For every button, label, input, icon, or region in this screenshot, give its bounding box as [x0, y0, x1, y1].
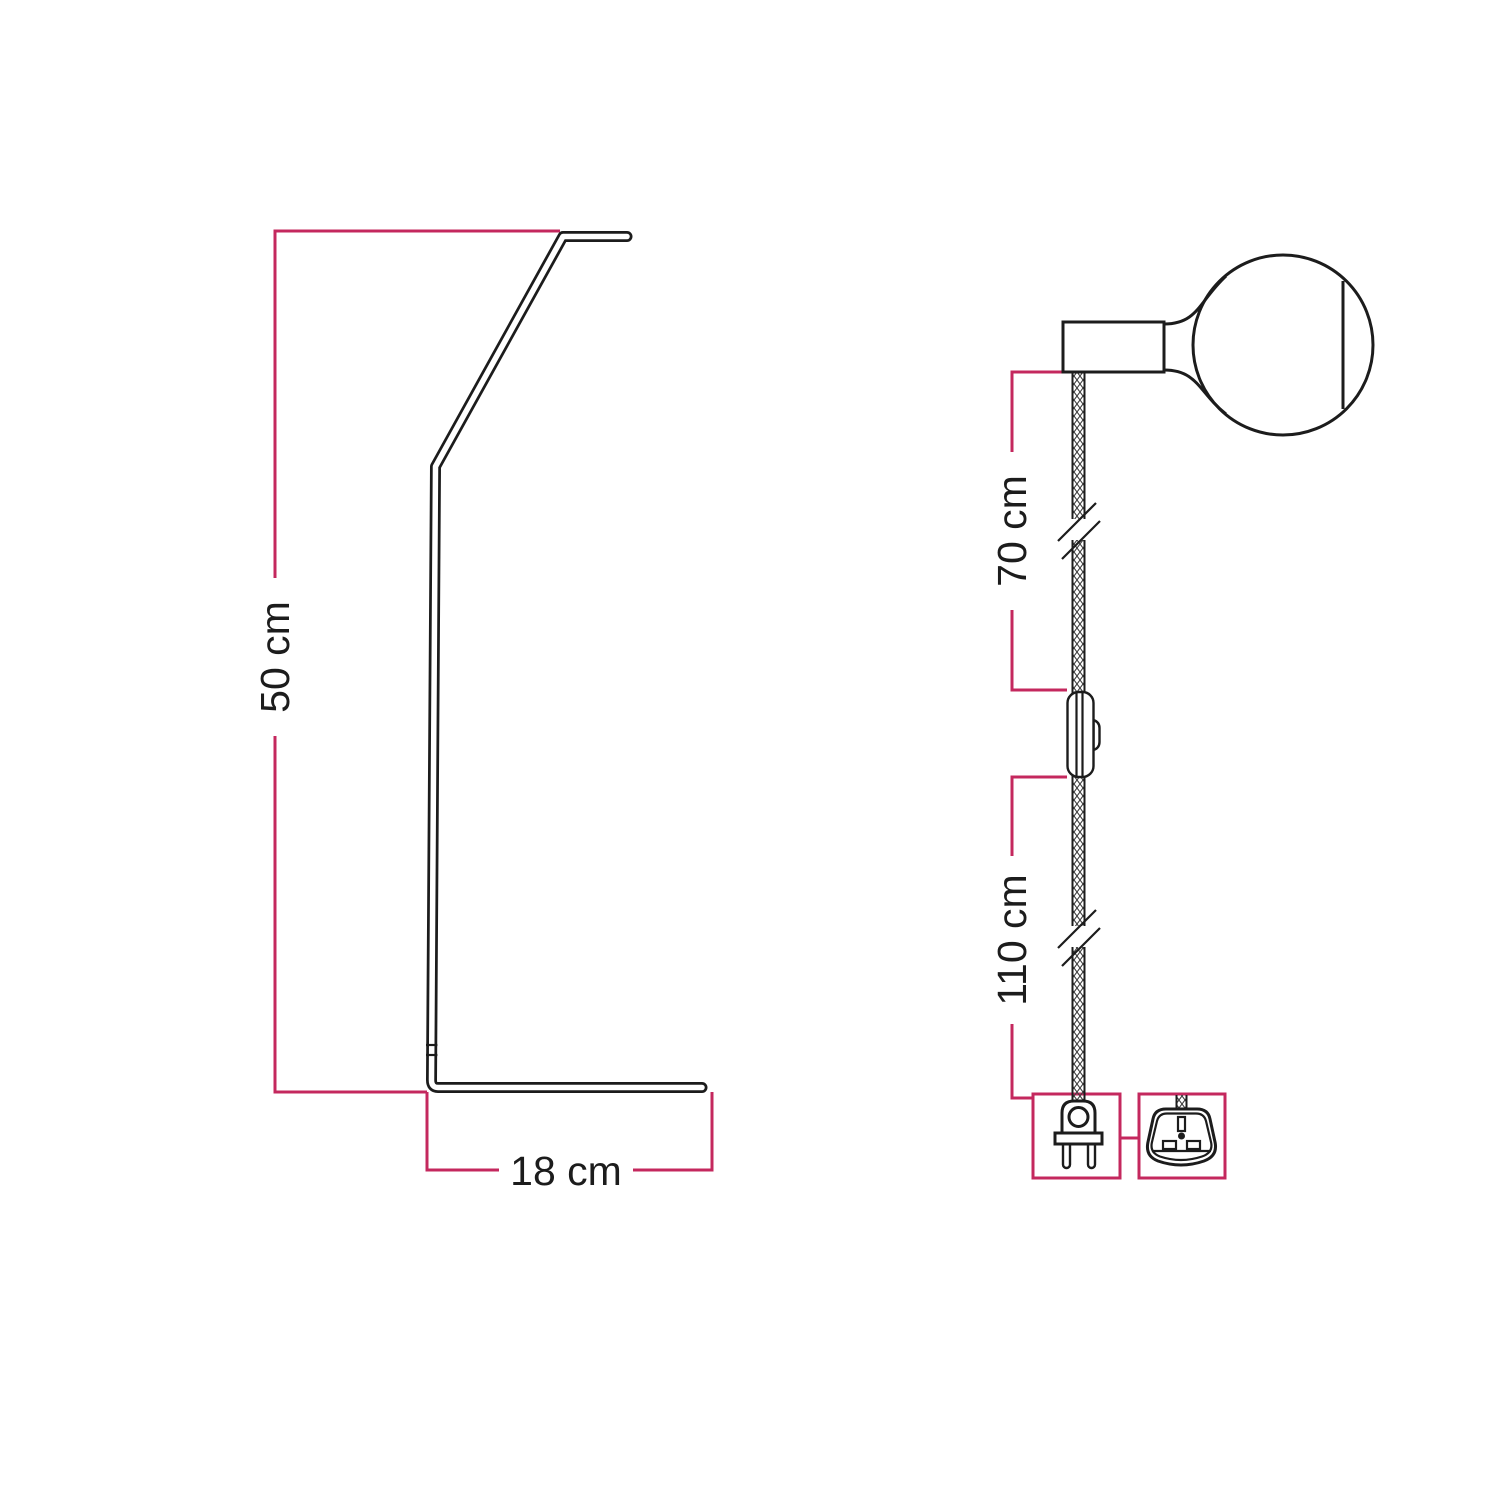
bulb-globe — [1164, 255, 1373, 435]
lamp-socket — [1063, 322, 1164, 372]
euro-plug-hole — [1069, 1108, 1088, 1127]
pendant-lamp-figure: 70 cm 110 cm — [989, 255, 1373, 1178]
upper-cable-dimension-label: 70 cm — [989, 475, 1035, 587]
height-dimension-label: 50 cm — [252, 601, 298, 713]
inline-switch — [1068, 692, 1100, 777]
uk-plug-screw-dot — [1178, 1133, 1185, 1140]
euro-plug-icon — [1055, 1101, 1102, 1168]
uk-plug-icon — [1147, 1095, 1215, 1165]
lower-cable-dimension-label: 110 cm — [989, 874, 1035, 1005]
stand-outline — [432, 237, 703, 1088]
stand-profile-figure: 50 cm 18 cm — [252, 231, 712, 1194]
lamp-dimension-diagram: 50 cm 18 cm 70 cm 110 cm — [0, 0, 1500, 1500]
euro-plug-collar — [1055, 1133, 1102, 1144]
base-dimension-label: 18 cm — [510, 1148, 622, 1194]
height-dimension-line — [275, 231, 560, 1092]
dimension-diagram-page: 50 cm 18 cm 70 cm 110 cm — [0, 0, 1500, 1500]
